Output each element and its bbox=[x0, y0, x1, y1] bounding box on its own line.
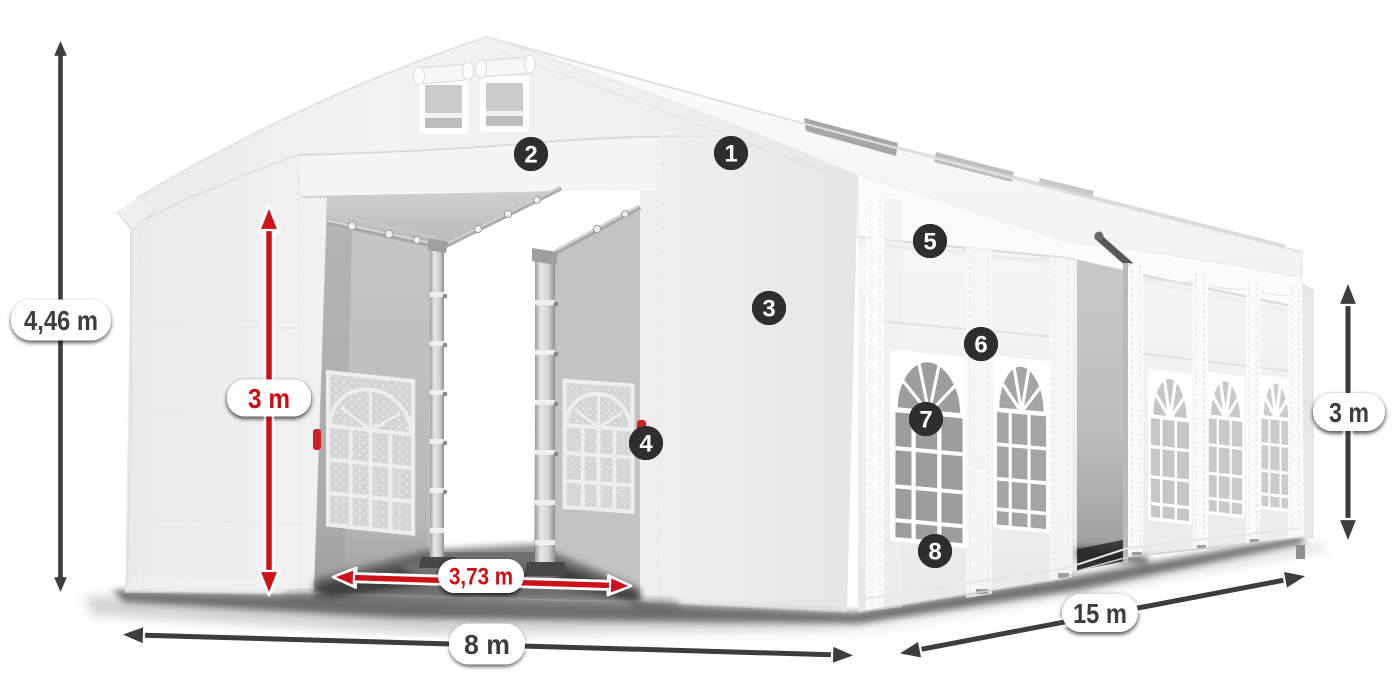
svg-text:15 m: 15 m bbox=[1073, 598, 1127, 629]
svg-text:1: 1 bbox=[724, 141, 737, 168]
svg-text:3 m: 3 m bbox=[1329, 397, 1369, 428]
svg-text:3 m: 3 m bbox=[248, 383, 290, 414]
svg-text:7: 7 bbox=[919, 407, 932, 434]
svg-text:3: 3 bbox=[762, 296, 775, 323]
svg-text:8 m: 8 m bbox=[464, 629, 510, 660]
svg-text:4: 4 bbox=[639, 431, 653, 458]
svg-text:6: 6 bbox=[974, 332, 987, 359]
svg-text:8: 8 bbox=[928, 539, 941, 566]
svg-text:4,46 m: 4,46 m bbox=[24, 305, 98, 336]
svg-text:2: 2 bbox=[524, 142, 537, 169]
svg-text:5: 5 bbox=[923, 229, 936, 256]
svg-text:3,73 m: 3,73 m bbox=[449, 563, 513, 590]
